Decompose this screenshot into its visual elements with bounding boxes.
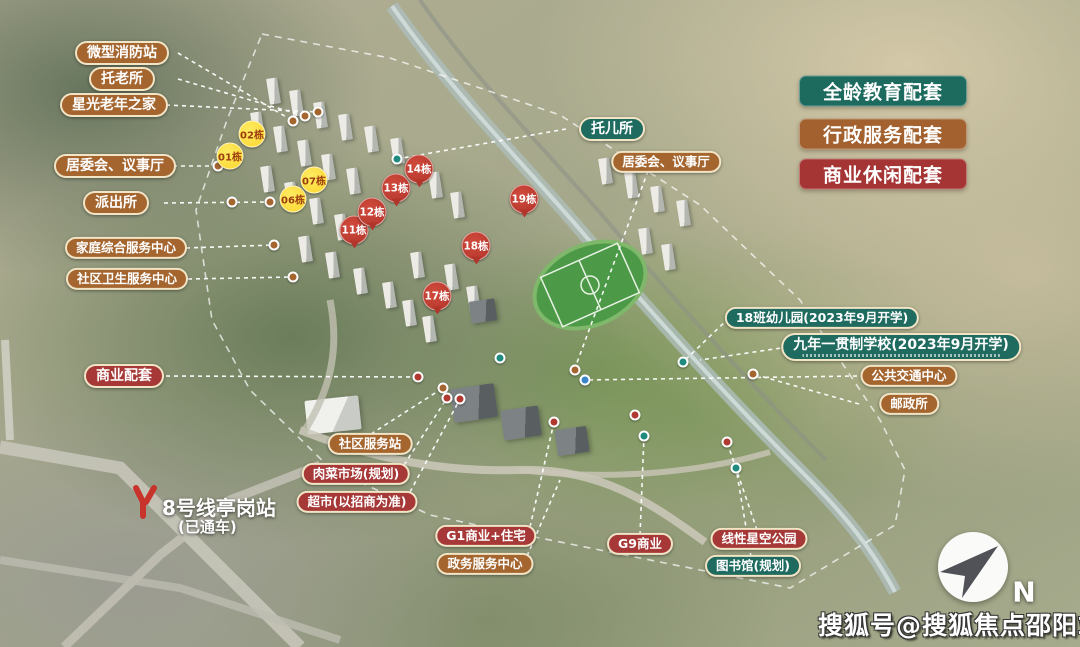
callout-police-station: 派出所	[83, 191, 149, 215]
callout-commercial-support: 商业配套	[84, 364, 164, 388]
callout-dot	[269, 240, 280, 251]
building-badge-19: 19栋	[510, 185, 539, 214]
callout-family-service-center: 家庭综合服务中心	[65, 237, 187, 259]
sports-field	[521, 225, 660, 345]
callout-dot	[678, 357, 689, 368]
callout-supermarket: 超市(以招商为准)	[297, 491, 418, 513]
callout-dot	[639, 431, 650, 442]
watermark: 搜狐号@搜狐焦点邵阳站	[818, 606, 1080, 642]
callout-dot	[265, 197, 276, 208]
building-badge-12: 12栋	[358, 198, 387, 227]
callout-dot	[442, 393, 453, 404]
building-badge-13: 13栋	[382, 174, 411, 203]
metro-line-icon	[130, 484, 160, 520]
callout-dot	[288, 116, 299, 127]
callout-dot	[392, 154, 403, 165]
building-badge-01: 01栋	[217, 143, 244, 170]
callout-community-service-station: 社区服务站	[328, 433, 413, 455]
master-plan-map: 微型消防站 托老所 星光老年之家 居委会、议事厅 派出所 家庭综合服务中心 社区…	[0, 0, 1080, 647]
callout-dot	[227, 197, 238, 208]
callout-dot	[580, 375, 591, 386]
callout-linear-star-park: 线性星空公园	[710, 528, 807, 550]
callout-nursery: 托儿所	[579, 117, 645, 141]
callout-dot	[288, 272, 299, 283]
callout-dot	[413, 372, 424, 383]
callout-dot	[313, 107, 324, 118]
building-badge-18: 18栋	[462, 232, 491, 261]
callout-dot	[722, 437, 733, 448]
building-badge-14: 14栋	[405, 155, 434, 184]
legend-commercial-banner: 商业休闲配套	[799, 159, 967, 190]
compass	[938, 532, 1008, 602]
callout-dot	[748, 369, 759, 380]
callout-elder-care-home: 托老所	[89, 67, 155, 91]
callout-kindergarten: 18班幼儿园(2023年9月开学)	[725, 307, 919, 329]
building-badge-02: 02栋	[239, 121, 266, 148]
metro-station: 8号线亭岗站 (已通车)	[130, 484, 160, 524]
legend-admin-banner: 行政服务配套	[799, 119, 967, 150]
callout-dot	[630, 410, 641, 421]
building-badge-07: 07栋	[301, 167, 328, 194]
road	[5, 340, 10, 440]
callout-public-transport-center: 公共交通中心	[860, 365, 957, 387]
station-status: (已通车)	[178, 516, 237, 537]
callout-community-health-center: 社区卫生服务中心	[66, 268, 188, 290]
building-badge-17: 17栋	[423, 282, 452, 311]
callout-starlight-senior-home: 星光老年之家	[60, 93, 168, 117]
callout-library: 图书馆(规划)	[705, 555, 801, 577]
callout-post-office: 邮政所	[879, 393, 939, 415]
callout-dot	[570, 365, 581, 376]
callout-committee-hall-left: 居委会、议事厅	[54, 154, 176, 178]
building-badge-06: 06栋	[280, 186, 307, 213]
callout-g9-commercial: G9商业	[607, 533, 673, 555]
legend-education-banner: 全龄教育配套	[799, 76, 967, 107]
callout-g1-commercial-residential: G1商业+住宅	[435, 525, 536, 547]
callout-dot	[300, 111, 311, 122]
railway	[420, 0, 826, 460]
callout-micro-fire-station: 微型消防站	[75, 41, 169, 65]
fine-print-line	[802, 354, 1000, 357]
callout-committee-hall-right: 居委会、议事厅	[611, 151, 721, 173]
compass-north-label: N	[1012, 576, 1035, 609]
callout-meat-vegetable-market: 肉菜市场(规划)	[302, 463, 410, 485]
callout-dot	[495, 353, 506, 364]
road	[305, 300, 334, 430]
callout-government-service-center: 政务服务中心	[436, 553, 533, 575]
callout-dot	[455, 394, 466, 405]
nine-year-school-label: 九年一贯制学校(2023年9月开学)	[793, 337, 1009, 353]
callout-dot	[731, 463, 742, 474]
callout-dot	[549, 417, 560, 428]
callout-nine-year-school: 九年一贯制学校(2023年9月开学)	[781, 333, 1021, 361]
road	[0, 447, 300, 647]
